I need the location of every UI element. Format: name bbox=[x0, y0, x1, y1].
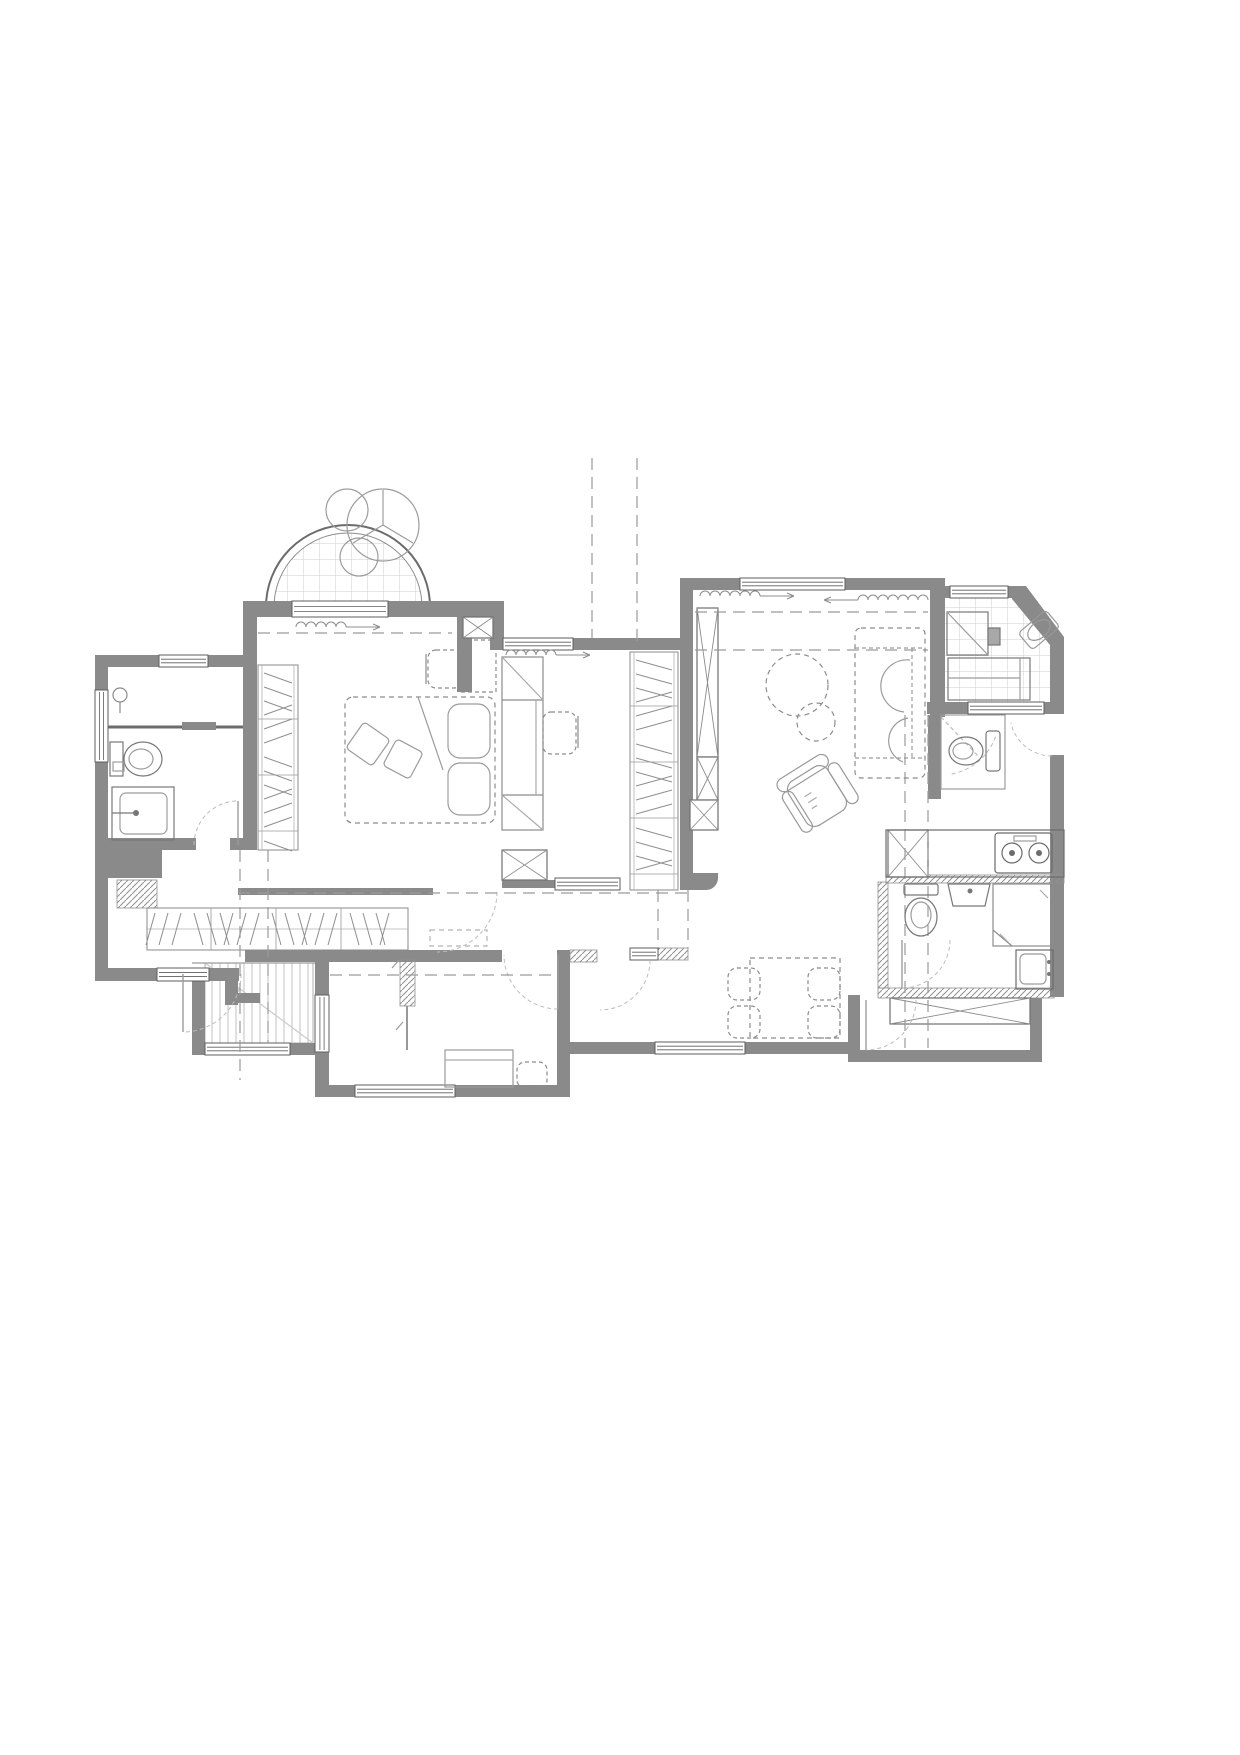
window-bedroom2-top bbox=[503, 638, 573, 650]
toilet-bowl-bath2 bbox=[905, 898, 937, 936]
window-bedroom3-bottom bbox=[355, 1085, 455, 1097]
door-arc-dining bbox=[600, 960, 650, 1010]
floor-plan bbox=[0, 0, 1240, 1755]
wall-living-left-corner bbox=[680, 873, 718, 890]
sofa-pillow bbox=[881, 660, 910, 712]
vanity-basin-bath2 bbox=[1020, 954, 1046, 984]
bedroom3-desk bbox=[445, 1050, 513, 1087]
shoe-cabinet-entry bbox=[146, 908, 408, 950]
toilet-bowl-inner-bath1 bbox=[129, 749, 153, 769]
dining-table bbox=[750, 958, 840, 1038]
master-desk-chair bbox=[428, 650, 462, 688]
stove bbox=[995, 833, 1052, 873]
wall-master-partition bbox=[238, 888, 433, 895]
window-laundry-bottom bbox=[968, 702, 1044, 714]
cabinet-xbox-master bbox=[463, 617, 493, 638]
toilet-tank-bath2 bbox=[904, 884, 938, 895]
wall-powder-left bbox=[928, 715, 941, 799]
tv-cabinet-upper bbox=[697, 608, 718, 757]
sliding-arrow bbox=[396, 1022, 403, 1030]
entry-column bbox=[108, 850, 162, 878]
wall-bay-pier-right bbox=[388, 601, 504, 617]
wall-laundry-bottom-east bbox=[1044, 702, 1064, 714]
door-arc-kitchen-east bbox=[1011, 723, 1052, 756]
door-threshold-dashes bbox=[430, 930, 487, 946]
floor-plan-svg bbox=[0, 0, 1240, 1755]
wall-laundry-bottom bbox=[927, 702, 972, 714]
wall-living-top-left bbox=[693, 578, 740, 590]
cabinet-xbox-bedroom2 bbox=[502, 850, 547, 880]
window-bedroom3-left bbox=[315, 995, 329, 1052]
shower-door-bath2 bbox=[993, 930, 1012, 946]
wall-entry-bottom bbox=[95, 968, 158, 981]
coffee-table-small bbox=[797, 703, 835, 741]
wall-bath2-right bbox=[1050, 875, 1064, 997]
ac-platform-balconyR bbox=[890, 998, 1030, 1024]
wall-bedroom2-south bbox=[502, 880, 557, 888]
bed-cushion bbox=[383, 739, 424, 780]
window-bath-left bbox=[95, 690, 108, 762]
toilet-bowl-inner-powder bbox=[953, 743, 973, 759]
curtain-living-left bbox=[700, 591, 794, 599]
dining-chair bbox=[808, 1006, 840, 1038]
wall-balconyR-bottom bbox=[848, 1050, 1042, 1062]
wall-entry-step-h bbox=[238, 993, 260, 1003]
opening-living-south bbox=[630, 948, 658, 960]
armchair-label-mark bbox=[808, 797, 816, 802]
bedroom2-cabinet bbox=[502, 657, 543, 830]
window-dining-bottom bbox=[655, 1042, 745, 1054]
wall-basin-bath2 bbox=[948, 884, 990, 906]
wall-master-west bbox=[243, 601, 257, 850]
hatch-entry-cabinet bbox=[117, 880, 157, 908]
toilet-bowl-bath1 bbox=[124, 742, 162, 776]
dining-chair bbox=[728, 968, 760, 1000]
wall-bay-pier-left bbox=[255, 601, 292, 617]
wardrobe-master bbox=[258, 665, 298, 851]
stove-burner-right-center bbox=[1036, 850, 1042, 856]
window-bath-top bbox=[159, 655, 208, 667]
wall-bath-top-left bbox=[95, 655, 159, 667]
armchair-arm-right bbox=[826, 760, 861, 805]
armchair-label-mark bbox=[812, 805, 817, 808]
bath1-accessory bbox=[113, 762, 124, 771]
wall-living-top-right bbox=[845, 578, 935, 590]
cabinet-xbox-hall bbox=[690, 800, 718, 830]
bedroom2-cabinet-diagonal bbox=[502, 795, 543, 830]
bed-cushion bbox=[346, 722, 391, 767]
bedroom2-chair bbox=[543, 712, 576, 754]
bedroom3-stool bbox=[517, 1062, 547, 1088]
dining-chair bbox=[808, 968, 840, 1000]
bed-pillow-top bbox=[448, 704, 490, 758]
stove-control-label bbox=[1014, 836, 1036, 841]
wall-corridor-south bbox=[245, 950, 502, 962]
armchair-back bbox=[774, 752, 831, 795]
window-balconyL-bottom bbox=[205, 1043, 290, 1055]
vanity-faucet bbox=[1047, 960, 1051, 964]
coffee-table-large bbox=[766, 654, 828, 716]
door-arc-bedroom3 bbox=[504, 955, 558, 1009]
curtain-living-right bbox=[824, 595, 928, 603]
hatch-wall-corridor bbox=[570, 950, 597, 962]
cabinet-xbox-kitchen bbox=[888, 830, 928, 877]
hatch-wall-bath2-left bbox=[878, 882, 888, 988]
toilet-bowl-powder bbox=[949, 737, 983, 765]
dining-chair bbox=[728, 1006, 760, 1038]
tv-cabinet-lower bbox=[697, 757, 718, 800]
armchair-arm-left bbox=[780, 789, 815, 834]
sliding-panel-bedroom3 bbox=[400, 960, 415, 1006]
wall-living-right bbox=[930, 578, 945, 717]
window-living-top bbox=[740, 578, 845, 590]
armchair-label-mark bbox=[804, 793, 811, 797]
stove-burner-left-center bbox=[1009, 850, 1015, 856]
shower-head bbox=[113, 688, 127, 702]
shower-tick bbox=[1040, 890, 1048, 898]
slider-bedroom2-south bbox=[555, 878, 620, 890]
door-arc-master bbox=[437, 892, 497, 952]
wall-bedroom2-top bbox=[573, 638, 683, 650]
wall-entry-left bbox=[95, 848, 108, 980]
bedroom2-cabinet-diagonal bbox=[502, 657, 543, 700]
laundry-small-unit bbox=[988, 628, 1000, 645]
wall-entry-step-v bbox=[225, 975, 238, 1005]
wardrobe-bedroom2 bbox=[630, 652, 678, 890]
shower-door-handle bbox=[182, 722, 216, 730]
washbasin-drain-bath1 bbox=[133, 810, 139, 816]
wall-laundry-right bbox=[1050, 645, 1064, 708]
wall-basin-drain bbox=[968, 889, 973, 894]
hatch-wall-living-south bbox=[658, 948, 688, 960]
wall-bath-bottom-east bbox=[230, 838, 257, 850]
door-arc-powder bbox=[951, 737, 995, 774]
window-bay-base bbox=[292, 601, 388, 617]
curtain-master bbox=[296, 622, 380, 630]
bed-throw-line bbox=[418, 697, 443, 770]
bed-pillow-bottom bbox=[448, 763, 490, 815]
vanity-faucet bbox=[1047, 972, 1051, 976]
shower-tick bbox=[1000, 934, 1008, 942]
wall-bedroom3-right bbox=[557, 950, 570, 1092]
door-arc-bath2 bbox=[902, 940, 950, 988]
window-laundry-top bbox=[950, 586, 1008, 598]
